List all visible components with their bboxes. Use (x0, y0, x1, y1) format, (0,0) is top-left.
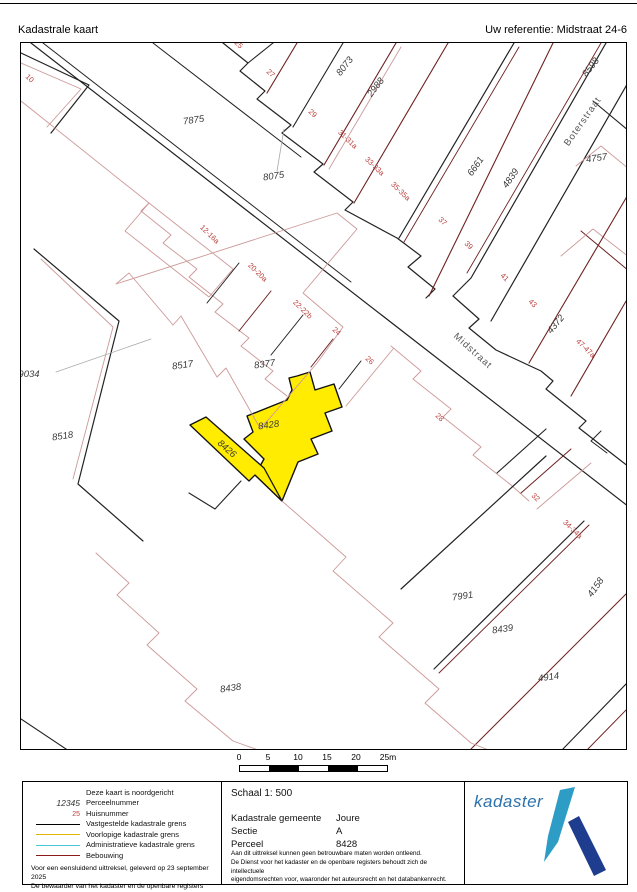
parcel-number-8438: 8438 (219, 682, 242, 696)
scale-tick: 20 (351, 752, 360, 762)
house-number-29: 29 (307, 107, 319, 119)
house-number-24: 24 (331, 325, 343, 337)
legend-label: Administratieve kadastrale grens (86, 840, 195, 849)
parcel-number-4757: 4757 (585, 152, 608, 166)
reference-text: Uw referentie: Midstraat 24-6 (485, 24, 627, 36)
parcel-number-8377: 8377 (253, 358, 276, 372)
scale-tick: 0 (237, 752, 242, 762)
page-top-rule (0, 3, 637, 4)
parcel-number-8517: 8517 (171, 359, 194, 373)
legend-line-black (36, 824, 80, 825)
house-number-28: 28 (434, 411, 446, 423)
legend-label: Perceelnummer (86, 798, 139, 807)
gemeente-value: Joure (336, 813, 360, 826)
house-number-12-16a: 12-16a (198, 223, 222, 246)
legend-label: Voorlopige kadastrale grens (86, 830, 179, 839)
parcel-number-8439: 8439 (491, 623, 514, 637)
parcel-number-4372: 4372 (545, 312, 567, 336)
parcel-number-8518: 8518 (51, 430, 74, 444)
legend-label: Bebouwing (86, 851, 123, 860)
house-number-32: 32 (530, 491, 542, 503)
house-number-31-31a: 31-31a (336, 128, 360, 151)
scale-tick: 5 (266, 752, 271, 762)
logo-column: kadaster (464, 782, 626, 884)
street-name-boterstraat: Boterstraat (562, 95, 604, 148)
parcel-number-7875: 7875 (182, 114, 205, 128)
sectie-value: A (336, 826, 342, 839)
legend-parcel-number-sample: 12345 (56, 798, 80, 808)
parcel-number-4158: 4158 (585, 575, 607, 599)
issued-line: Voor een eensluidend uittreksel, gelever… (31, 864, 219, 882)
house-number-22-22b: 22-22b (291, 298, 314, 321)
scale-bar: 0 5 10 15 20 25m (0, 752, 637, 778)
house-number-20-20a: 20-20a (246, 261, 270, 284)
legend-line-darkred (36, 855, 80, 856)
parcel-number-8598: 8598 (580, 55, 602, 79)
legend-footer: Voor een eensluidend uittreksel, gelever… (31, 864, 219, 892)
house-number-37: 37 (437, 215, 449, 227)
scale-tick: 15 (322, 752, 331, 762)
parcel-number-7991: 7991 (451, 590, 473, 604)
parcel-number-9034: 9034 (21, 369, 40, 380)
legend-label: Huisnummer (86, 809, 129, 818)
house-number-34-34a: 34-34a (561, 518, 585, 541)
legend-label: Deze kaart is noordgericht (86, 788, 174, 797)
house-number-39: 39 (463, 239, 475, 251)
house-number-33-33a: 33-33a (363, 155, 387, 178)
scale-tick: 10 (293, 752, 302, 762)
scale-bar-segments (239, 765, 388, 772)
footer-panel: Deze kaart is noordgericht 12345Perceeln… (22, 781, 628, 885)
keeper-line: De bewaarder van het kadaster en de open… (31, 882, 219, 891)
house-number-25: 25 (233, 43, 245, 50)
info-column: Schaal 1: 500 Kadastrale gemeenteJoure S… (221, 782, 465, 884)
cadastral-map: 7875807580732988859847576661483943729034… (21, 43, 626, 749)
legend-line-yellow (36, 834, 80, 835)
house-number-43: 43 (527, 297, 539, 309)
scale-tick: 25m (380, 752, 397, 762)
house-number-41: 41 (499, 271, 511, 283)
legend-label: Vastgestelde kadastrale grens (86, 819, 186, 828)
parcel-number-4839: 4839 (500, 166, 522, 190)
kadaster-logo: kadaster (468, 784, 618, 882)
parcel-number-6661: 6661 (465, 155, 486, 179)
disclaimer: Aan dit uittreksel kunnen geen betrouwba… (231, 850, 461, 885)
legend-column: Deze kaart is noordgericht 12345Perceeln… (23, 782, 222, 884)
map-frame: 7875807580732988859847576661483943729034… (20, 42, 627, 750)
scale-text: Schaal 1: 500 (231, 788, 456, 799)
house-number-35-35a: 35-35a (389, 180, 413, 203)
document-title: Kadastrale kaart (18, 24, 98, 36)
legend-house-number-sample: 25 (72, 811, 80, 818)
house-number-10: 10 (24, 72, 36, 84)
parcel-number-4914: 4914 (537, 671, 559, 685)
legend: Deze kaart is noordgericht 12345Perceeln… (31, 787, 216, 861)
parcel-number-8073: 8073 (334, 54, 356, 78)
house-number-26: 26 (364, 354, 376, 366)
gemeente-label: Kadastrale gemeente (231, 813, 336, 826)
street-name-midstraat: Midstraat (451, 331, 494, 371)
scale-tick-labels: 0 5 10 15 20 25m (0, 752, 637, 762)
parcel-number-8075: 8075 (262, 170, 285, 184)
house-number-27: 27 (265, 67, 277, 79)
legend-line-cyan (36, 845, 80, 846)
kadaster-wordmark: kadaster (474, 792, 543, 812)
parcel-number-2988: 2988 (365, 75, 388, 100)
sectie-label: Sectie (231, 826, 336, 839)
